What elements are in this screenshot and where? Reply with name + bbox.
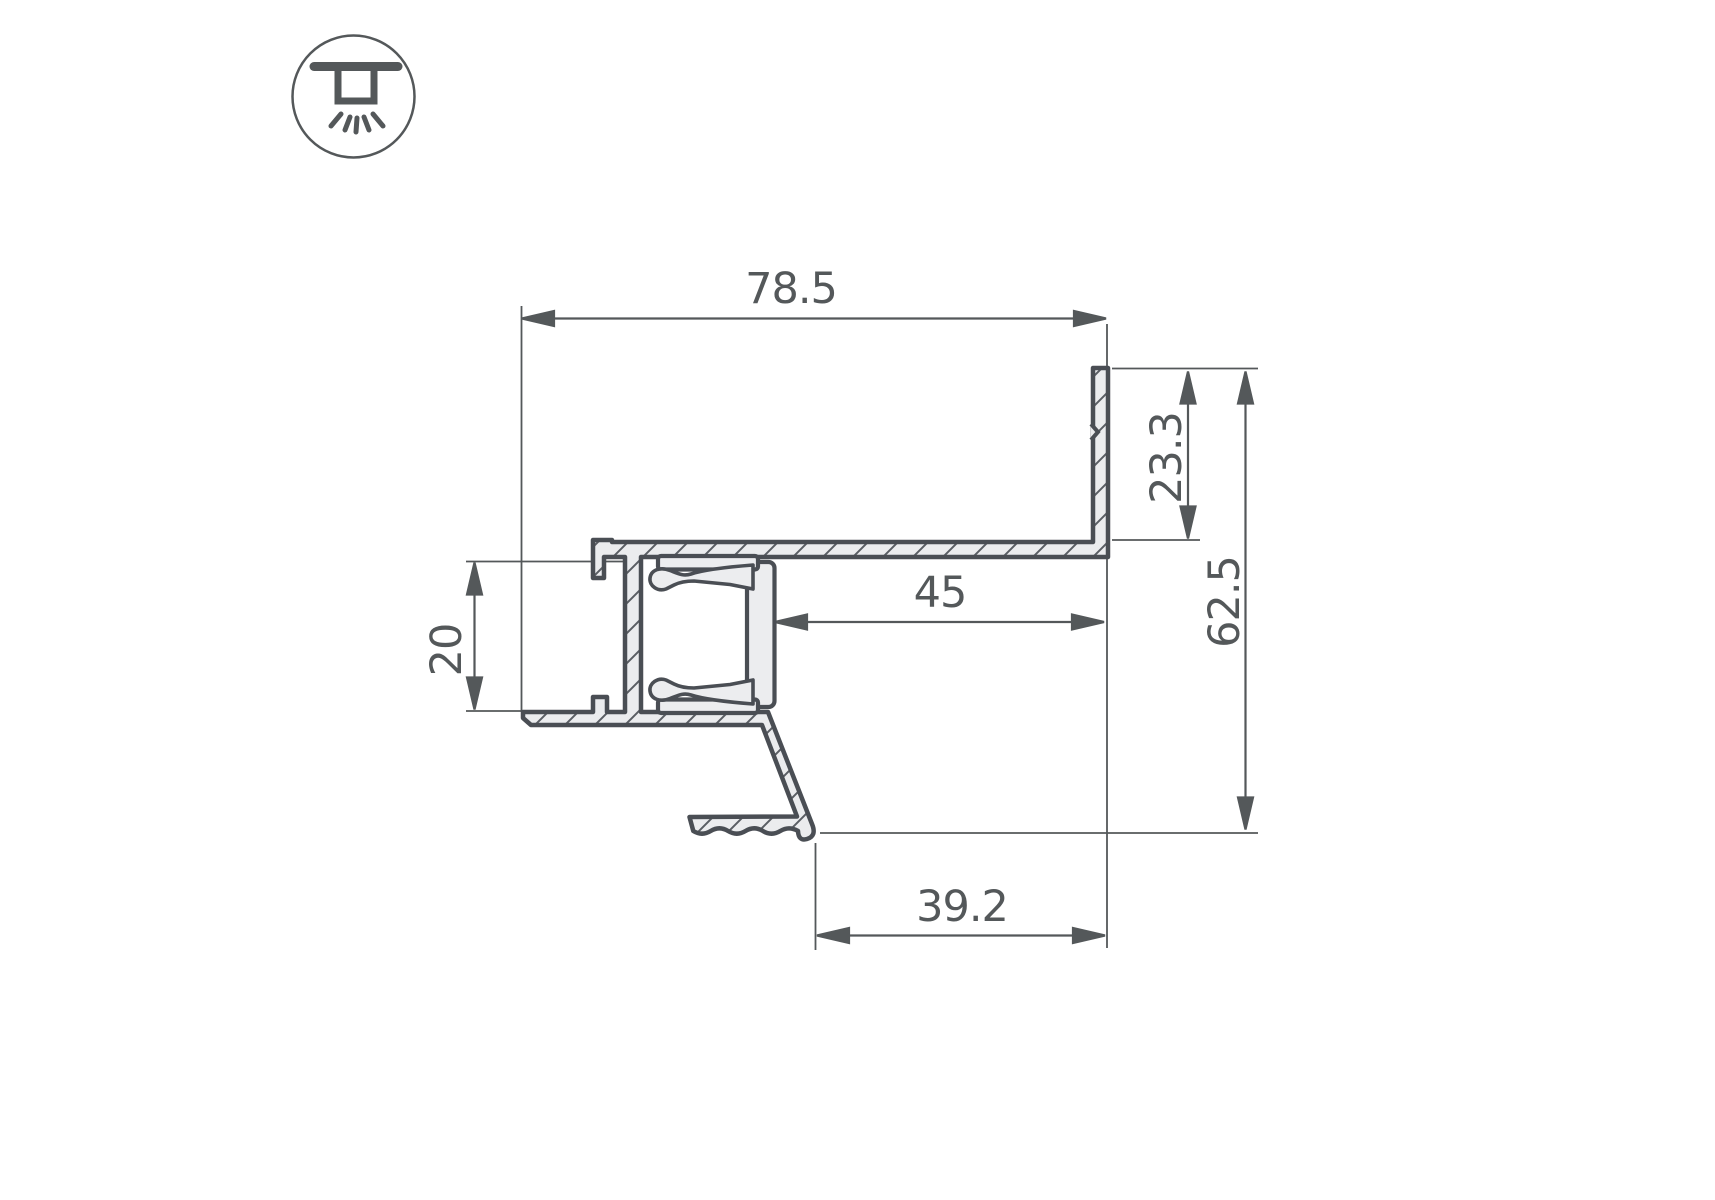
icon-lamp-housing [338,70,374,101]
dim-overall-height-label: 62.5 [1200,556,1250,648]
arrow-down [1181,507,1196,539]
led-channel-insert [650,556,775,713]
dim-leg-offset-label: 39.2 [916,882,1008,932]
recessed-downlight-icon [293,36,415,158]
arrow-up [1181,372,1196,404]
dim-overall-width-label: 78.5 [745,264,837,314]
profile-body [523,368,1108,839]
dim-channel-height-label: 20 [422,624,472,677]
arrow-right [1072,615,1104,630]
dim-wall-height-label: 23.3 [1142,412,1192,504]
dim-niche-width-label: 45 [914,568,967,618]
arrow-right [1073,928,1105,943]
dimension-lines [467,311,1253,943]
arrow-right [1074,311,1106,326]
arrow-left [775,615,807,630]
arrow-up [1238,372,1253,404]
drawing-canvas: 78.5 45 39.2 20 23.3 62.5 [0,0,1715,1200]
icon-circle [293,36,415,158]
extension-lines [466,306,1258,950]
icon-light-rays [331,114,383,132]
arrow-up [467,563,482,595]
arrow-left [817,928,849,943]
dimension-labels: 78.5 45 39.2 20 23.3 62.5 [422,264,1250,932]
arrow-left [522,311,554,326]
arrow-down [467,678,482,710]
profile-cross-section-drawing: 78.5 45 39.2 20 23.3 62.5 [0,0,1715,1200]
arrow-down [1238,798,1253,830]
